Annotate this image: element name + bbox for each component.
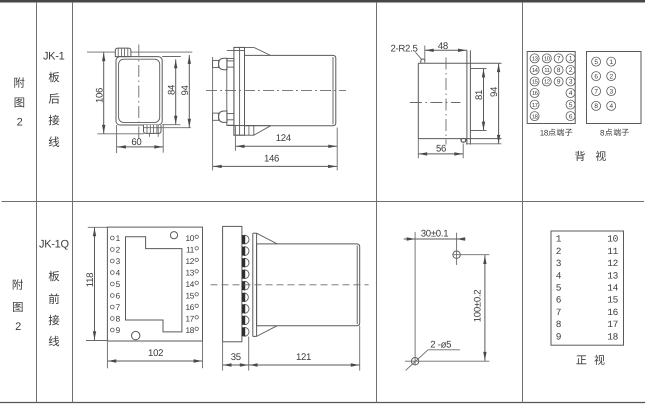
svg-text:4: 4 bbox=[116, 268, 121, 277]
svg-text:1: 1 bbox=[569, 56, 573, 63]
svg-text:18: 18 bbox=[185, 326, 194, 335]
svg-text:3: 3 bbox=[556, 258, 562, 269]
svg-text:13: 13 bbox=[185, 268, 194, 277]
svg-text:3: 3 bbox=[610, 88, 614, 95]
svg-text:2: 2 bbox=[17, 117, 23, 129]
svg-text:9: 9 bbox=[557, 79, 561, 86]
svg-text:2: 2 bbox=[610, 73, 614, 80]
svg-text:6: 6 bbox=[116, 291, 121, 300]
svg-text:2-R2.5: 2-R2.5 bbox=[391, 44, 418, 55]
svg-text:100±0.2: 100±0.2 bbox=[472, 290, 483, 323]
svg-text:124: 124 bbox=[276, 133, 292, 144]
svg-text:14: 14 bbox=[607, 283, 618, 294]
svg-text:6: 6 bbox=[594, 73, 598, 80]
svg-text:JK-1: JK-1 bbox=[43, 51, 65, 63]
svg-text:7: 7 bbox=[116, 303, 121, 312]
svg-text:5: 5 bbox=[594, 59, 598, 66]
svg-text:15: 15 bbox=[607, 295, 618, 306]
svg-text:1: 1 bbox=[610, 59, 614, 66]
svg-text:106: 106 bbox=[94, 88, 105, 103]
svg-text:60: 60 bbox=[131, 137, 141, 148]
svg-text:81: 81 bbox=[474, 90, 485, 100]
svg-text:146: 146 bbox=[264, 153, 279, 164]
svg-text:84: 84 bbox=[166, 84, 177, 95]
svg-text:JK-1Q: JK-1Q bbox=[39, 238, 69, 250]
svg-text:5: 5 bbox=[116, 280, 121, 289]
svg-text:2: 2 bbox=[15, 321, 21, 333]
svg-text:3: 3 bbox=[569, 79, 573, 86]
svg-text:102: 102 bbox=[148, 348, 163, 359]
svg-text:35: 35 bbox=[231, 352, 241, 363]
svg-text:5: 5 bbox=[556, 283, 562, 294]
svg-text:4: 4 bbox=[610, 103, 614, 110]
svg-text:8: 8 bbox=[556, 319, 562, 330]
svg-text:2: 2 bbox=[556, 246, 562, 257]
svg-text:17: 17 bbox=[532, 102, 538, 109]
svg-text:12: 12 bbox=[607, 258, 618, 269]
svg-text:48: 48 bbox=[438, 41, 448, 52]
svg-text:17: 17 bbox=[185, 314, 194, 323]
svg-text:8: 8 bbox=[116, 314, 121, 323]
svg-text:15: 15 bbox=[185, 291, 194, 300]
svg-text:7: 7 bbox=[557, 56, 561, 63]
svg-text:6: 6 bbox=[556, 295, 562, 306]
svg-text:121: 121 bbox=[296, 352, 311, 363]
svg-text:16: 16 bbox=[185, 303, 194, 312]
svg-text:1: 1 bbox=[116, 234, 121, 243]
svg-text:17: 17 bbox=[607, 319, 618, 330]
svg-text:3: 3 bbox=[116, 257, 121, 266]
svg-text:7: 7 bbox=[556, 307, 561, 318]
svg-text:2: 2 bbox=[116, 245, 121, 254]
svg-text:7: 7 bbox=[594, 88, 598, 95]
svg-text:11: 11 bbox=[607, 246, 618, 257]
svg-text:2: 2 bbox=[569, 67, 573, 74]
svg-text:94: 94 bbox=[489, 86, 500, 97]
svg-text:11: 11 bbox=[544, 67, 549, 74]
svg-text:8: 8 bbox=[600, 128, 605, 137]
svg-text:8: 8 bbox=[594, 103, 598, 110]
svg-text:13: 13 bbox=[607, 270, 618, 281]
svg-text:118: 118 bbox=[85, 273, 96, 287]
svg-text:18: 18 bbox=[540, 128, 549, 137]
svg-text:16: 16 bbox=[607, 307, 618, 318]
svg-text:30±0.1: 30±0.1 bbox=[421, 228, 448, 239]
svg-text:12: 12 bbox=[544, 79, 550, 86]
svg-text:14: 14 bbox=[185, 280, 194, 289]
svg-text:94: 94 bbox=[180, 85, 191, 96]
svg-text:10: 10 bbox=[185, 234, 194, 243]
svg-text:4: 4 bbox=[569, 90, 573, 97]
svg-text:8: 8 bbox=[557, 67, 561, 74]
svg-text:11: 11 bbox=[186, 245, 195, 254]
svg-text:10: 10 bbox=[607, 234, 618, 245]
svg-text:5: 5 bbox=[569, 102, 573, 109]
svg-text:1: 1 bbox=[556, 234, 562, 245]
svg-text:18: 18 bbox=[607, 331, 618, 342]
svg-text:56: 56 bbox=[436, 144, 446, 155]
svg-text:4: 4 bbox=[556, 270, 562, 281]
svg-text:12: 12 bbox=[185, 257, 194, 266]
svg-text:2 -ø5: 2 -ø5 bbox=[430, 340, 451, 351]
svg-text:9: 9 bbox=[556, 331, 562, 342]
svg-text:9: 9 bbox=[116, 326, 121, 335]
svg-text:6: 6 bbox=[569, 113, 573, 120]
